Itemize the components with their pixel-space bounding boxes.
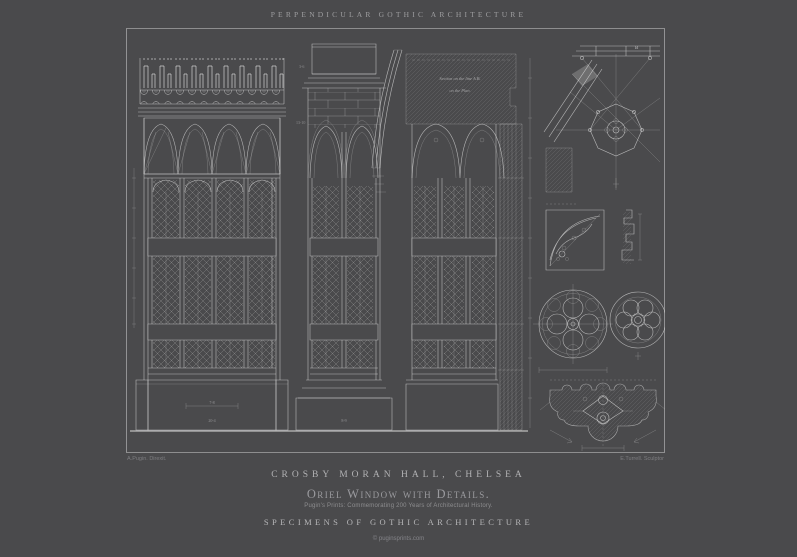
architectural-drawing: 7-8 20-4 3-6 13-10 bbox=[126, 28, 665, 453]
print-subtitle: Oriel Window with Details. bbox=[0, 487, 797, 502]
boss-detail-right bbox=[610, 292, 665, 360]
left-elevation-drawing: 7-8 20-4 bbox=[136, 58, 288, 430]
plate-header: PERPENDICULAR GOTHIC ARCHITECTURE bbox=[0, 10, 797, 19]
corbel-plan-drawing bbox=[540, 380, 665, 451]
credit-right: E.Turrell. Sculptor bbox=[620, 456, 664, 462]
plate-credits: A.Pugin. Direxit. E.Turrell. Sculptor bbox=[127, 456, 664, 462]
copyright-notice: © puginsprints.com bbox=[0, 536, 797, 542]
dimension-left-base-total: 20-4 bbox=[208, 418, 215, 423]
middle-elevation-drawing: 3-6 13-10 8-9 bbox=[296, 44, 392, 430]
scale-bar bbox=[132, 168, 136, 328]
dimension-middle-wall: 13-10 bbox=[296, 120, 305, 125]
print-title: CROSBY MORAN HALL, CHELSEA bbox=[0, 470, 797, 480]
dimension-left-base-width: 7-8 bbox=[209, 400, 214, 405]
gothic-architecture-print: PERPENDICULAR GOTHIC ARCHITECTURE bbox=[0, 0, 797, 557]
section-note-line1: Section on the line A.B. bbox=[439, 76, 480, 81]
section-note-line2: on the Plan. bbox=[449, 88, 470, 93]
boss-detail-left bbox=[533, 284, 613, 373]
dimension-middle-parapet: 3-6 bbox=[299, 64, 304, 69]
moulding-profile-drawing bbox=[622, 210, 642, 264]
spandrel-detail-drawing bbox=[546, 204, 604, 270]
credit-left: A.Pugin. Direxit. bbox=[127, 456, 166, 462]
ceiling-plan-drawing: B bbox=[544, 46, 660, 192]
print-tagline: Pugin's Prints: Commemorating 200 Years … bbox=[0, 503, 797, 509]
dimension-middle-base: 8-9 bbox=[341, 418, 346, 423]
series-title: SPECIMENS OF GOTHIC ARCHITECTURE bbox=[0, 517, 797, 527]
section-drawing: Section on the line A.B. on the Plan. bbox=[406, 54, 532, 430]
ceiling-plan-label: B bbox=[635, 46, 639, 51]
